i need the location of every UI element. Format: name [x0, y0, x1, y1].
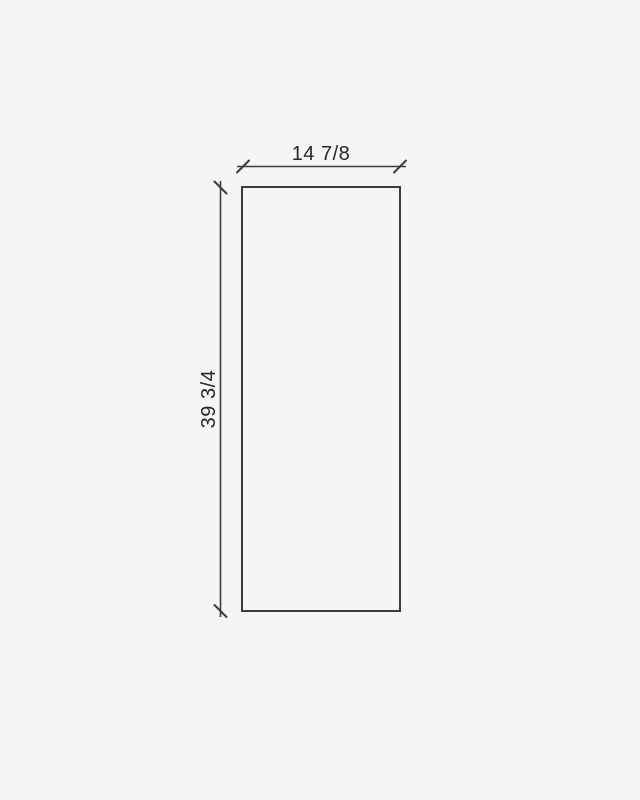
panel-outline — [242, 187, 400, 611]
width-dimension-label: 14 7/8 — [292, 143, 351, 165]
height-dimension-label: 39 3/4 — [198, 370, 220, 429]
drawing-canvas: 14 7/8 39 3/4 — [0, 0, 640, 800]
width-dimension: 14 7/8 — [237, 143, 406, 173]
height-dimension: 39 3/4 — [198, 181, 227, 617]
technical-drawing: 14 7/8 39 3/4 — [0, 0, 640, 800]
